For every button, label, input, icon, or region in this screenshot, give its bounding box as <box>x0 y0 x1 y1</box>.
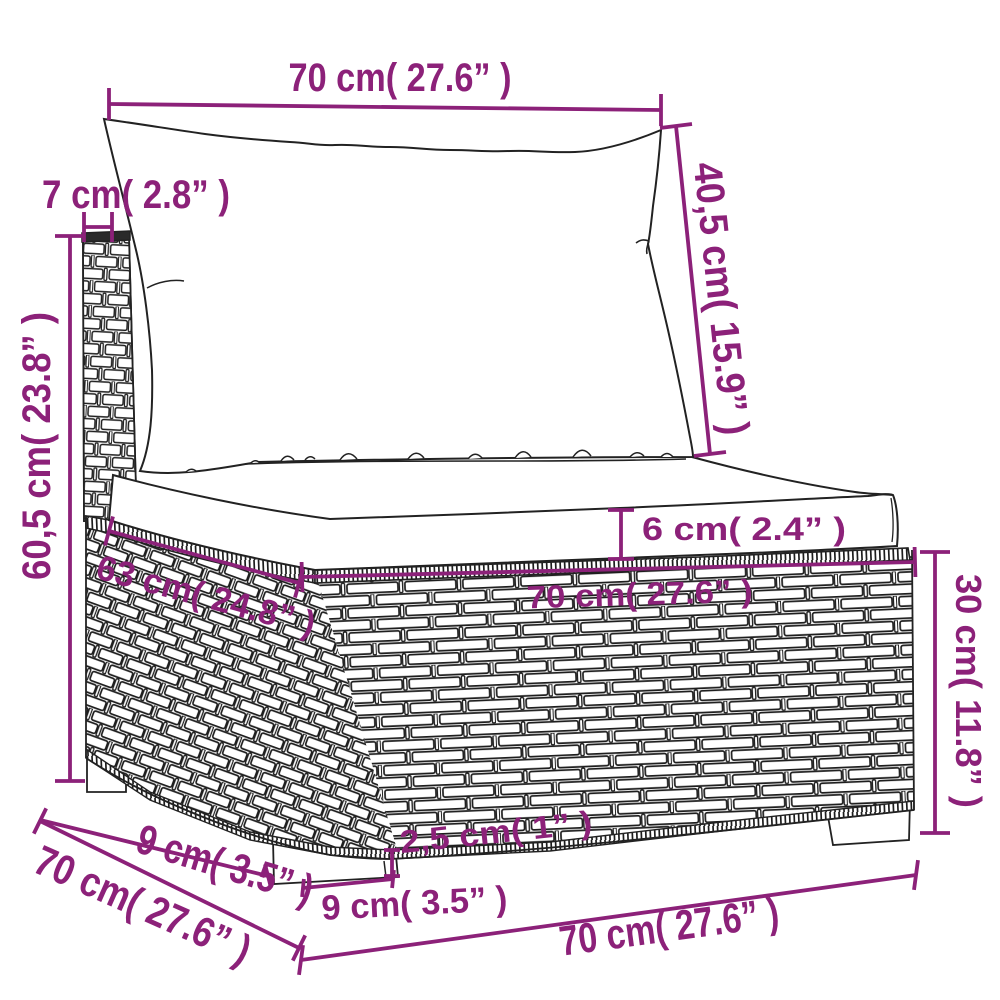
svg-text:70 cm( 27.6” ): 70 cm( 27.6” ) <box>289 56 512 100</box>
svg-text:7 cm( 2.8” ): 7 cm( 2.8” ) <box>42 173 230 217</box>
svg-text:30 cm( 11.8” ): 30 cm( 11.8” ) <box>948 574 989 808</box>
svg-text:60,5 cm( 23.8” ): 60,5 cm( 23.8” ) <box>15 312 59 580</box>
svg-text:6 cm( 2.4” ): 6 cm( 2.4” ) <box>642 511 846 547</box>
svg-text:70 cm( 27.6” ): 70 cm( 27.6” ) <box>526 573 753 616</box>
